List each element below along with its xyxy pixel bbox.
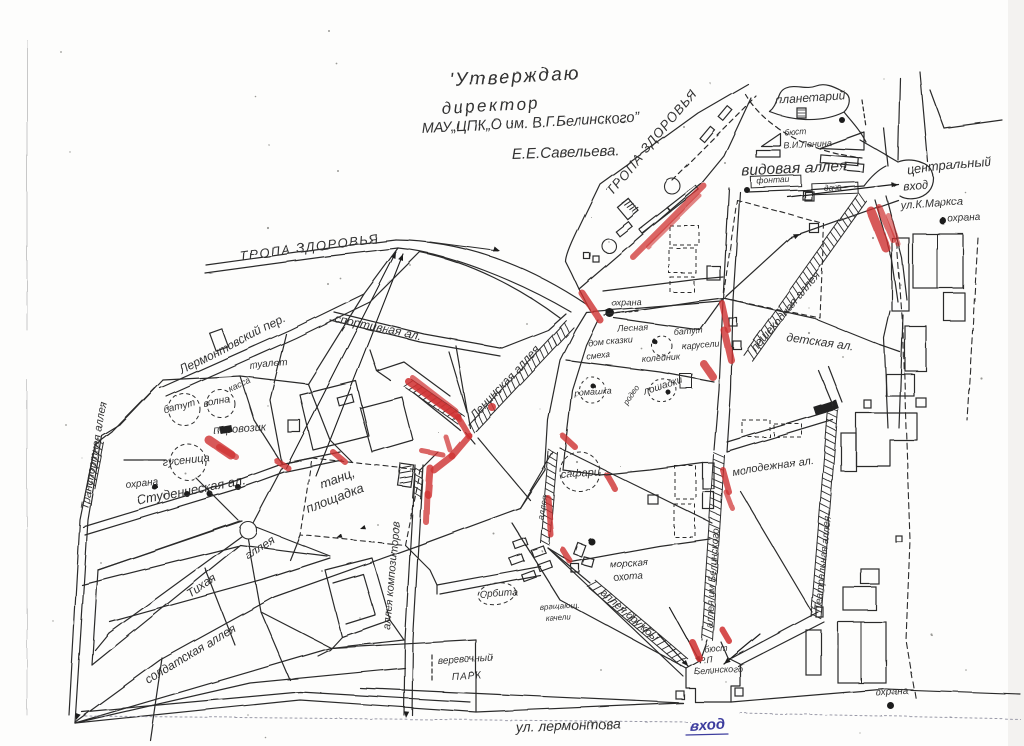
svg-text:бюст: бюст: [784, 126, 807, 137]
svg-text:охота: охота: [613, 571, 644, 584]
svg-text:охрана: охрана: [947, 212, 981, 225]
svg-text:вход: вход: [689, 716, 726, 735]
svg-text:охрана: охрана: [875, 686, 909, 699]
svg-text:бюст: бюст: [704, 643, 729, 654]
svg-text:вход: вход: [902, 177, 929, 193]
svg-text:качели: качели: [546, 612, 572, 623]
svg-text:охрана: охрана: [612, 296, 642, 308]
svg-text:смеха: смеха: [585, 349, 610, 361]
svg-text:ПАРК: ПАРК: [452, 670, 483, 683]
